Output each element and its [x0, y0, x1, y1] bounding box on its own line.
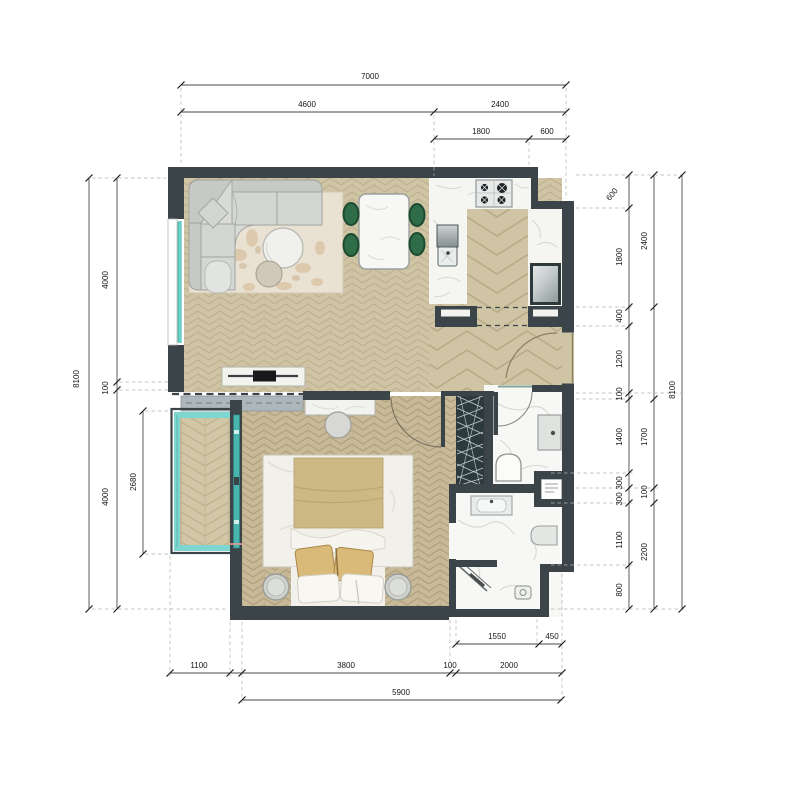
svg-text:1200: 1200: [615, 350, 624, 368]
svg-text:100: 100: [615, 387, 624, 401]
svg-text:1800: 1800: [615, 248, 624, 266]
svg-text:100: 100: [101, 381, 110, 395]
svg-text:2400: 2400: [491, 100, 509, 109]
svg-text:8100: 8100: [668, 381, 677, 399]
svg-text:7000: 7000: [361, 72, 379, 81]
svg-text:2400: 2400: [640, 232, 649, 250]
svg-text:3800: 3800: [337, 661, 355, 670]
svg-text:1100: 1100: [615, 531, 624, 549]
svg-text:4000: 4000: [101, 271, 110, 289]
svg-text:2680: 2680: [129, 473, 138, 491]
svg-text:400: 400: [615, 309, 624, 323]
svg-text:8100: 8100: [72, 370, 81, 388]
svg-text:800: 800: [615, 583, 624, 597]
svg-text:100: 100: [443, 661, 457, 670]
svg-text:1550: 1550: [488, 632, 506, 641]
svg-text:4000: 4000: [101, 488, 110, 506]
svg-text:1400: 1400: [615, 428, 624, 446]
svg-text:1100: 1100: [190, 661, 208, 670]
svg-text:4600: 4600: [298, 100, 316, 109]
svg-text:5900: 5900: [392, 688, 410, 697]
svg-text:600: 600: [540, 127, 554, 136]
svg-text:2000: 2000: [500, 661, 518, 670]
svg-text:1700: 1700: [640, 428, 649, 446]
svg-text:300: 300: [615, 476, 624, 490]
svg-text:450: 450: [545, 632, 559, 641]
svg-text:2200: 2200: [640, 543, 649, 561]
svg-text:100: 100: [640, 485, 649, 499]
svg-text:1800: 1800: [472, 127, 490, 136]
svg-text:300: 300: [615, 492, 624, 506]
